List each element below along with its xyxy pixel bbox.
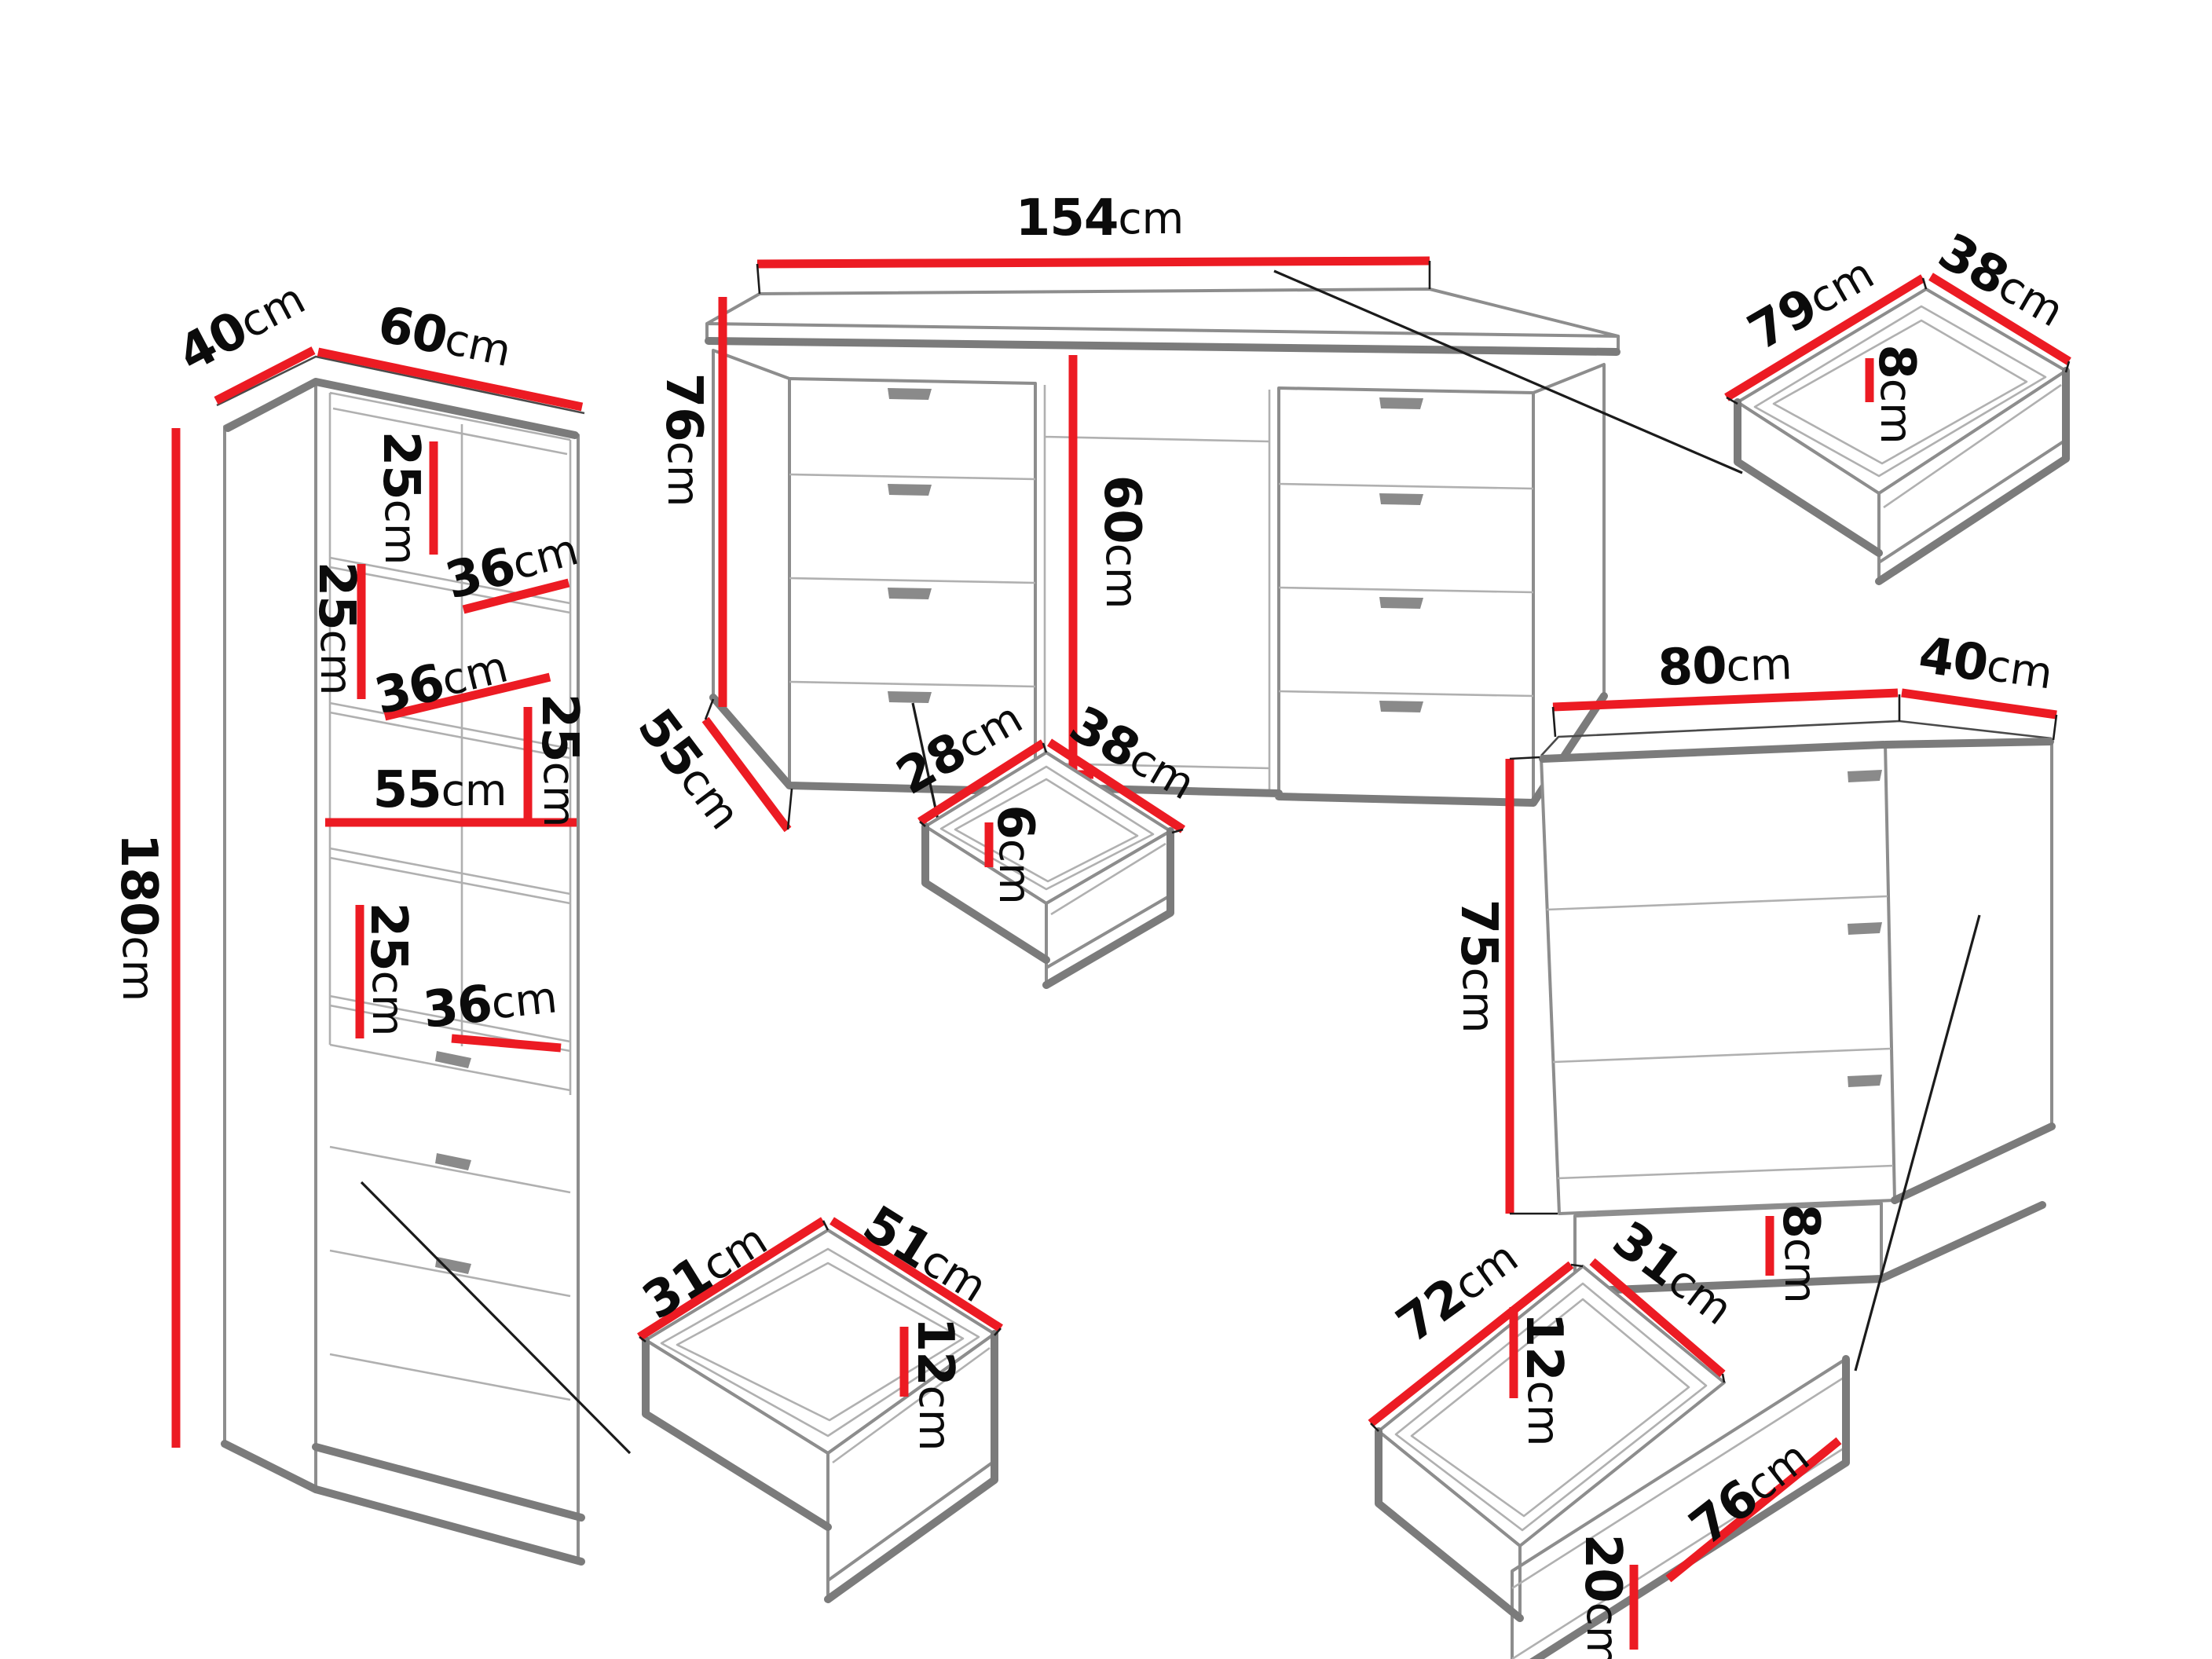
bookcase-drawing: 40cm 60cm 180cm 25cm 36cm 25cm 36cm 25cm… — [109, 269, 630, 1562]
label-chest-plinth-height: 8cm — [1771, 1203, 1829, 1303]
diagram-svg: 40cm 60cm 180cm 25cm 36cm 25cm 36cm 25cm… — [0, 0, 2212, 1659]
desk-right-pedestal — [1279, 388, 1533, 803]
label-desk-width: 154cm — [1016, 189, 1184, 247]
desk-drawing: 154cm 76cm 55cm 60cm — [626, 189, 1742, 841]
center-drawer-drawing: 31cm 51cm 12cm — [633, 1195, 1001, 1599]
label-center-drawer-inner-height: 12cm — [906, 1317, 964, 1452]
label-bookcase-gap1: 25cm — [372, 431, 430, 566]
label-bookcase-gap2: 25cm — [307, 562, 365, 696]
label-chest-height: 75cm — [1449, 899, 1507, 1034]
label-desk-height: 76cm — [654, 373, 712, 507]
label-chest-width: 80cm — [1657, 635, 1793, 698]
label-desk-drawer-inner-height: 8cm — [1867, 344, 1925, 444]
furniture-dimension-diagram: 40cm 60cm 180cm 25cm 36cm 25cm 36cm 25cm… — [0, 0, 2212, 1659]
label-desk-opening-height: 60cm — [1093, 475, 1151, 610]
chest-body — [1541, 740, 2052, 1214]
label-bookcase-gap3: 25cm — [530, 694, 588, 828]
label-small-drawer-inner-height: 6cm — [986, 804, 1044, 904]
label-bookcase-height: 180cm — [109, 833, 167, 1002]
label-bookcase-gap4: 25cm — [359, 903, 417, 1037]
small-drawer-drawing: 28cm 38cm 6cm — [888, 689, 1206, 985]
desk-drawer-drawing: 79cm 38cm 8cm — [1727, 222, 2074, 581]
label-chest-drawer-inner-height: 12cm — [1514, 1313, 1573, 1447]
label-chest-depth: 40cm — [1915, 626, 2056, 702]
label-chest-drawer-front-height: 20cm — [1573, 1534, 1632, 1659]
label-bookcase-inner-width: 55cm — [373, 761, 507, 819]
